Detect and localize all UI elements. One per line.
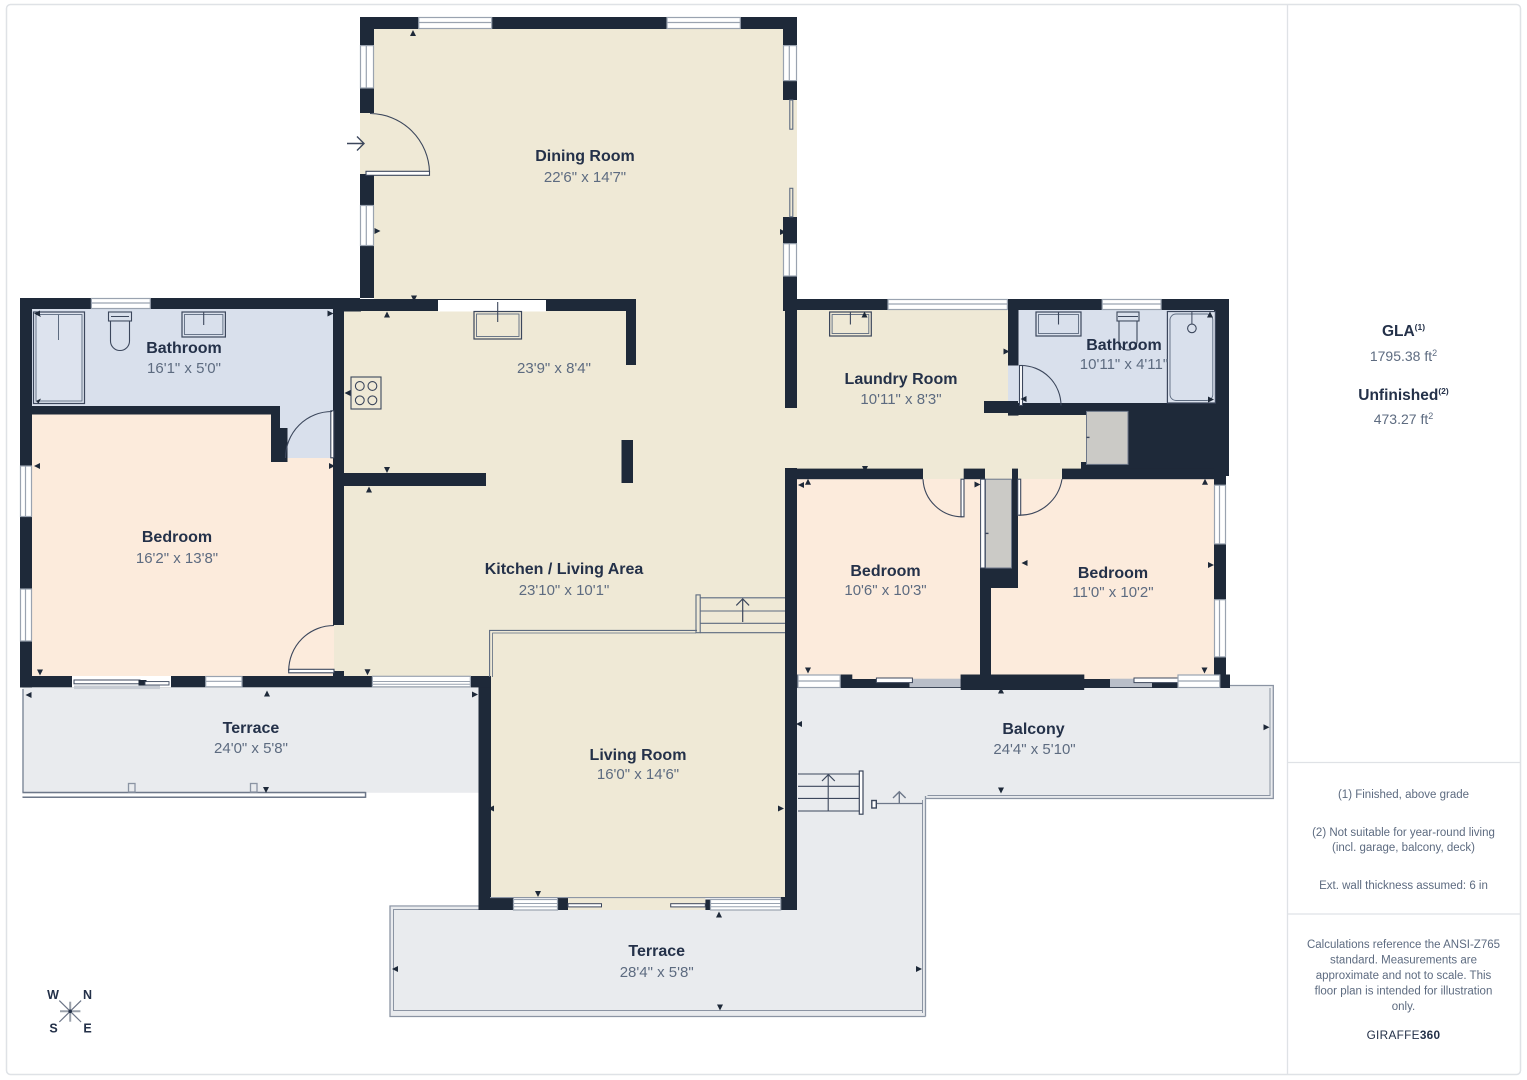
svg-text:W: W [47,988,59,1002]
svg-text:24'0" x 5'8": 24'0" x 5'8" [214,740,288,757]
svg-text:(incl. garage, balcony, deck): (incl. garage, balcony, deck) [1332,842,1475,854]
svg-text:(2) Not suitable for year-roun: (2) Not suitable for year-round living [1312,827,1495,839]
svg-text:28'4" x 5'8": 28'4" x 5'8" [620,964,694,981]
svg-text:Ext. wall thickness assumed: 6: Ext. wall thickness assumed: 6 in [1319,880,1488,892]
svg-text:approximate and not to scale.: approximate and not to scale. This [1316,970,1492,982]
svg-text:1795.38 ft2: 1795.38 ft2 [1370,348,1437,364]
svg-text:Balcony: Balcony [1002,721,1064,738]
svg-text:standard. Measurements are: standard. Measurements are [1330,955,1477,967]
svg-text:10'6" x 10'3": 10'6" x 10'3" [844,582,926,599]
svg-text:only.: only. [1392,1001,1415,1013]
svg-text:Calculations reference the ANS: Calculations reference the ANSI-Z765 [1307,939,1500,951]
svg-text:Terrace: Terrace [223,720,280,737]
svg-text:Unfinished(2): Unfinished(2) [1358,386,1449,404]
svg-text:16'0" x 14'6": 16'0" x 14'6" [597,766,679,783]
svg-text:Bathroom: Bathroom [1086,337,1162,354]
svg-text:Dining Room: Dining Room [535,148,635,165]
svg-text:GIRAFFE360: GIRAFFE360 [1367,1028,1441,1042]
svg-text:10'11" x 4'11": 10'11" x 4'11" [1080,356,1168,373]
svg-text:22'6" x 14'7": 22'6" x 14'7" [544,169,626,186]
svg-text:Kitchen / Living Area: Kitchen / Living Area [485,561,644,578]
svg-text:E: E [83,1022,91,1036]
svg-text:23'10" x 10'1": 23'10" x 10'1" [519,582,610,599]
svg-text:16'2" x 13'8": 16'2" x 13'8" [136,550,218,567]
svg-text:(1) Finished, above grade: (1) Finished, above grade [1338,789,1469,801]
svg-text:16'1" x 5'0": 16'1" x 5'0" [147,360,221,377]
svg-text:N: N [83,988,92,1002]
svg-text:10'11" x 8'3": 10'11" x 8'3" [860,391,941,408]
svg-text:S: S [49,1022,57,1036]
svg-text:23'9" x 8'4": 23'9" x 8'4" [517,360,591,377]
svg-text:floor plan is intended for ill: floor plan is intended for illustration [1315,986,1493,998]
svg-text:Terrace: Terrace [628,943,685,960]
svg-text:Bedroom: Bedroom [1078,565,1148,582]
svg-text:Bathroom: Bathroom [146,340,222,357]
svg-text:473.27 ft2: 473.27 ft2 [1374,411,1434,427]
svg-text:Laundry Room: Laundry Room [845,371,958,388]
svg-text:11'0" x 10'2": 11'0" x 10'2" [1072,584,1153,601]
svg-text:Bedroom: Bedroom [142,529,212,546]
svg-text:24'4" x 5'10": 24'4" x 5'10" [993,741,1075,758]
svg-text:Bedroom: Bedroom [850,563,920,580]
svg-text:Living Room: Living Room [590,747,687,764]
